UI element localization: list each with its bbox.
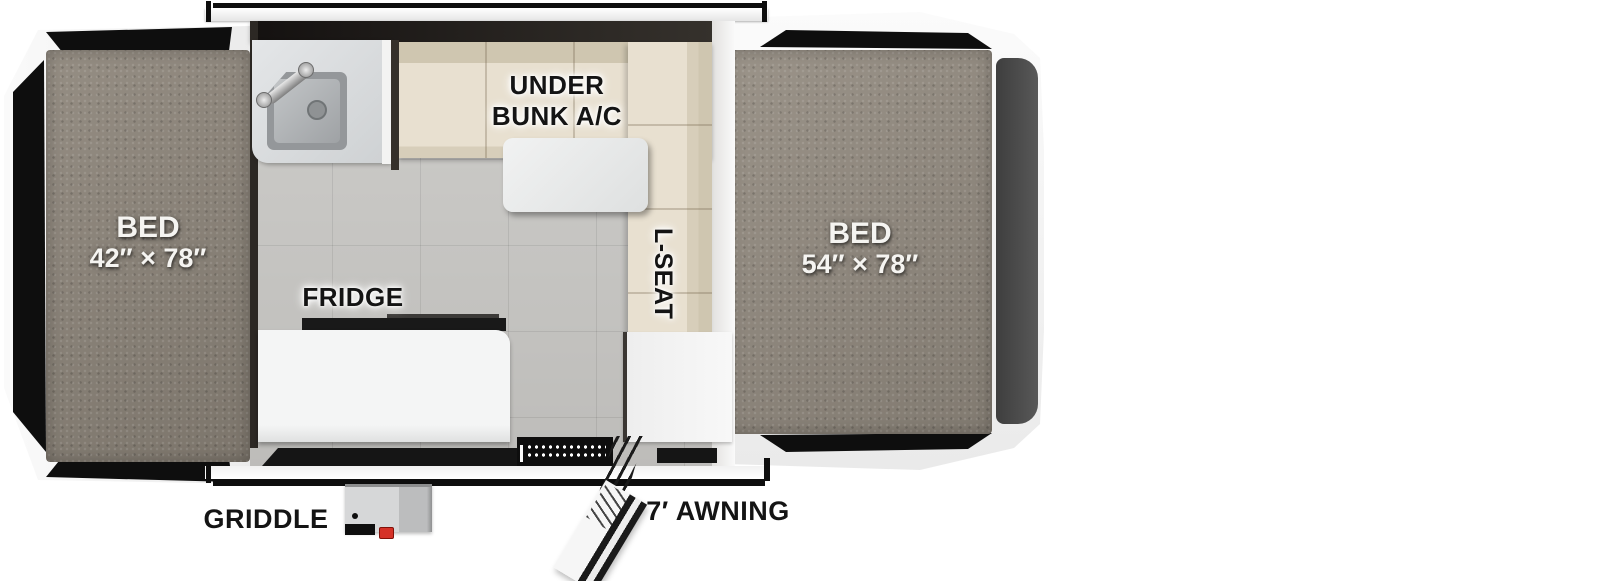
body-top-left-tick xyxy=(206,1,211,22)
griddle-button xyxy=(352,513,358,519)
label-awning: 7′ AWNING xyxy=(638,496,798,527)
left-bed-side-panel xyxy=(13,60,46,452)
step-mat-dots xyxy=(526,443,606,460)
body-top-band xyxy=(205,8,768,21)
sink-cabinet xyxy=(252,40,390,163)
faucet-icon xyxy=(254,60,318,112)
label-under-bunk-ac: UNDER BUNK A/C xyxy=(437,70,677,132)
floorplan-canvas: BED 42″ × 78″ BED 54″ × 78″ xyxy=(0,0,1600,581)
fridge-counter xyxy=(258,330,510,442)
cabinet-end-panel xyxy=(382,40,391,164)
body-top-right-tick xyxy=(762,1,767,22)
entry-door xyxy=(553,480,647,581)
label-bed-right: BED 54″ × 78″ xyxy=(802,219,919,279)
interior-top-wall xyxy=(250,21,712,42)
label-fridge: FRIDGE xyxy=(283,282,423,313)
label-l-seat: L-SEAT xyxy=(648,222,678,326)
dinette-table xyxy=(503,138,648,212)
body-bottom-right-tick xyxy=(764,458,770,481)
body-bottom-left-tick xyxy=(206,462,211,483)
right-bed-mattress: BED 54″ × 78″ xyxy=(728,50,992,434)
left-bed-mattress: BED 42″ × 78″ xyxy=(46,50,250,462)
l-seat-cabinet xyxy=(623,332,732,442)
label-griddle: GRIDDLE xyxy=(196,504,336,535)
label-bed-left: BED 42″ × 78″ xyxy=(90,213,207,273)
body-bottom-trim xyxy=(213,479,765,486)
griddle-knob-red xyxy=(379,527,394,539)
right-bed-end-panel xyxy=(996,58,1038,424)
griddle-base xyxy=(345,524,375,535)
door-vent-slats xyxy=(586,483,629,531)
body-bottom-band xyxy=(205,466,768,479)
cabinet-divider-wall xyxy=(391,40,399,170)
interior-bottom-wall-left xyxy=(262,448,517,466)
interior-bottom-wall-right xyxy=(657,448,717,463)
entry-step-mat xyxy=(517,437,613,466)
